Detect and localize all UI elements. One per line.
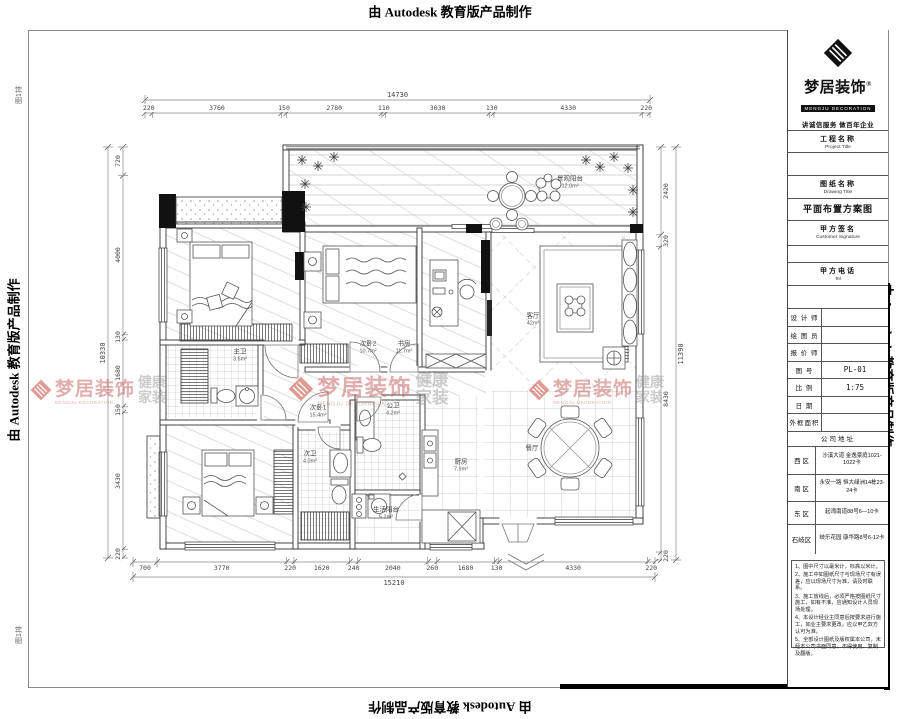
customer-signature-field <box>788 245 888 262</box>
floor-plan <box>0 0 899 719</box>
tel-field <box>788 285 888 308</box>
address-row-south: 南 区永安一路 恒大绿洲14栋23-24卡 <box>788 474 888 501</box>
general-notes: 1、图中尺寸以毫米计，标高以米计。 2、施工中如图纸尺寸与现场尺寸有误差，应以现… <box>791 560 885 648</box>
company-address-table: 西 区沙溪大道 金逸豪庭1021-1022卡 南 区永安一路 恒大绿洲14栋23… <box>788 446 888 554</box>
brand-slogan: 讲诚信服务 做百年企业 <box>788 119 888 129</box>
tel-header: 甲方电话 Tel <box>788 262 888 285</box>
brand-name-en: MENGJU DECORATION <box>801 105 876 112</box>
address-row-west: 西 区沙溪大道 金逸豪庭1021-1022卡 <box>788 446 888 474</box>
note-2: 2、施工中如图纸尺寸与现场尺寸有误差，应以现场尺寸为准，请及时联系。 <box>795 572 881 592</box>
company-address-header: 公司地址 <box>788 431 888 446</box>
note-3: 3、施工放线后，必须严格按图纸尺寸施工，如有不准，应通知设计人员现场处理。 <box>795 594 881 614</box>
drawing-title-value: 平面布置方案图 <box>788 198 888 220</box>
note-1: 1、图中尺寸以毫米计，标高以米计。 <box>795 564 881 571</box>
service-balcony-furniture <box>352 494 390 518</box>
info-row-quoter: 报 价 师 <box>788 343 888 361</box>
brand-name: 梦居装饰® <box>788 76 888 97</box>
note-5: 5、全部设计图纸及版权属本公司，未经本公司书面同意，不得使用、复制及翻版。 <box>795 637 881 657</box>
info-row-draftsman: 绘 图 员 <box>788 326 888 344</box>
mengju-logo-icon <box>820 38 856 70</box>
project-title-field <box>788 152 888 175</box>
customer-signature-header: 甲方签名 Customer Signature <box>788 220 888 245</box>
info-table: 设 计 师 绘 图 员 报 价 师 图 号PL-01 比 例1:75 日 期 外… <box>788 308 888 431</box>
title-block-logo: 梦居装饰® MENGJU DECORATION 讲诚信服务 做百年企业 <box>788 30 888 130</box>
address-row-shiqi: 石岐区岐乐花园 康华路8号6-12卡 <box>788 524 888 554</box>
info-row-drawing-no: 图 号PL-01 <box>788 361 888 379</box>
title-block: 梦居装饰® MENGJU DECORATION 讲诚信服务 做百年企业 工程名称… <box>787 30 888 687</box>
project-title-header: 工程名称 Project Title <box>788 130 888 152</box>
info-row-area: 外框面积 <box>788 413 888 431</box>
info-row-date: 日 期 <box>788 396 888 414</box>
address-row-east: 东 区起湾南道88号6—10卡 <box>788 501 888 524</box>
info-row-scale: 比 例1:75 <box>788 378 888 396</box>
drawing-sheet: 由 Autodesk 教育版产品制作 由 Autodesk 教育版产品制作 由 … <box>0 0 899 719</box>
drawing-title-header: 图纸名称 Drawing Title <box>788 175 888 198</box>
info-row-designer: 设 计 师 <box>788 308 888 326</box>
note-4: 4、本设计经业主同意后按要求进行施工，如业主要求更改，应以甲乙双方认可为准。 <box>795 615 881 635</box>
